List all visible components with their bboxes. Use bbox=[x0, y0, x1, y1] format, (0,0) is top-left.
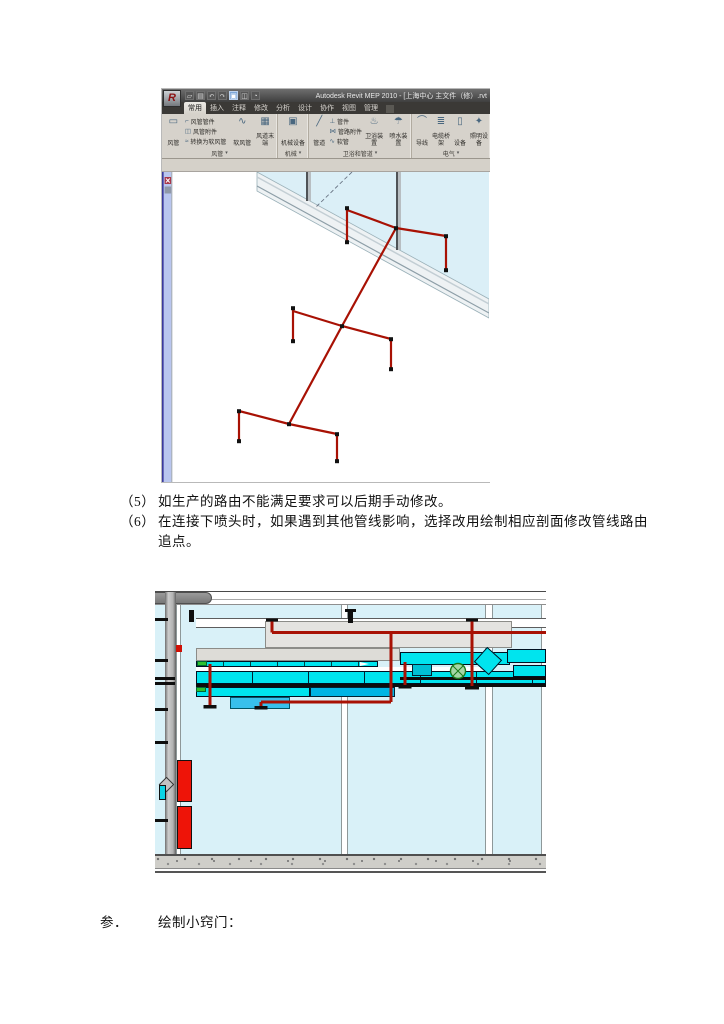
duct-accessory-icon: ◫ bbox=[185, 128, 191, 135]
ribbon-tab-bar: 常用 插入 注释 修改 分析 设计 协作 视图 管理 bbox=[162, 102, 490, 114]
flex-duct-icon: ∿ bbox=[238, 116, 246, 128]
heading-text: 绘制小窍门： bbox=[158, 915, 242, 930]
render-icon[interactable]: ◔ bbox=[251, 91, 260, 100]
list-text: 如生产的路由不能满足要求可以后期手动修改。 bbox=[158, 494, 452, 509]
button-label: 风管管件 bbox=[191, 117, 215, 126]
mullion bbox=[306, 172, 311, 201]
panel-label-electrical[interactable]: 电气▾ bbox=[412, 148, 490, 158]
pipe-fitting-button[interactable]: ⊥管件 bbox=[329, 117, 361, 126]
button-label: 风管附件 bbox=[193, 127, 217, 136]
panel-label-duct[interactable]: 风管▾ bbox=[162, 148, 277, 158]
button-label: 软管 bbox=[337, 137, 349, 146]
ribbon-panel-mechanical: ▣ 机械设备 机械▾ bbox=[278, 114, 309, 158]
revit-logo-icon[interactable]: R bbox=[163, 90, 181, 107]
panel-label-mechanical[interactable]: 机械▾ bbox=[278, 148, 308, 158]
button-label: 导线 bbox=[416, 141, 428, 148]
help-icon[interactable] bbox=[386, 105, 394, 113]
pipe-icon: ╱ bbox=[316, 116, 322, 128]
duct-icon: ▭ bbox=[169, 116, 178, 128]
redo-icon[interactable]: ↷ bbox=[218, 91, 227, 100]
tab-home[interactable]: 常用 bbox=[184, 102, 206, 114]
drawing-area-3d-view[interactable] bbox=[162, 172, 490, 483]
3d-view-graphics bbox=[162, 172, 489, 483]
list-item-5: （5）如生产的路由不能满足要求可以后期手动修改。 bbox=[120, 492, 452, 512]
button-label: 软风管 bbox=[233, 141, 251, 148]
button-label: 管道 bbox=[313, 141, 325, 148]
list-item-6-continued: 追点。 bbox=[158, 532, 200, 552]
mullion bbox=[396, 172, 401, 250]
duct-accessory-button[interactable]: ◫风管附件 bbox=[185, 127, 231, 136]
tab-view[interactable]: 视图 bbox=[338, 102, 360, 114]
sprinkler-icon: ☂ bbox=[394, 116, 403, 128]
list-text: 在连接下喷头时，如果遇到其他管线影响，选择改用绘制相应剖面修改管线路由 bbox=[158, 514, 648, 529]
button-label: 照明设备 bbox=[470, 134, 488, 147]
pipe-fitting-icon: ⊥ bbox=[329, 118, 335, 125]
button-label: 卫浴装置 bbox=[362, 134, 385, 147]
ribbon-panel-duct: ▭ 风管 ⌐风管管件 ◫风管附件 ≈转换为软风管 ∿ 软风管 ▦ 风道末端 bbox=[162, 114, 278, 158]
tab-analyze[interactable]: 分析 bbox=[272, 102, 294, 114]
flex-pipe-icon: ∿ bbox=[329, 138, 334, 145]
tab-annotate[interactable]: 注释 bbox=[228, 102, 250, 114]
list-number: （6） bbox=[120, 512, 158, 532]
button-label: 管路附件 bbox=[338, 127, 362, 136]
tab-modify[interactable]: 修改 bbox=[250, 102, 272, 114]
air-terminal-icon: ▦ bbox=[260, 116, 269, 128]
plumbing-fixture-button[interactable]: ♨ 卫浴装置 bbox=[362, 115, 385, 148]
button-label: 机械设备 bbox=[281, 141, 305, 148]
list-item-6: （6）在连接下喷头时，如果遇到其他管线影响，选择改用绘制相应剖面修改管线路由 bbox=[120, 512, 648, 532]
sprinkler-main-pipes bbox=[210, 621, 546, 707]
tab-insert[interactable]: 插入 bbox=[206, 102, 228, 114]
chevron-down-icon: ▾ bbox=[375, 150, 378, 156]
convert-flex-duct-icon: ≈ bbox=[185, 138, 189, 145]
heading-number: 参． bbox=[100, 913, 158, 933]
plumbing-fixture-icon: ♨ bbox=[370, 116, 379, 128]
convert-flex-duct-button[interactable]: ≈转换为软风管 bbox=[185, 137, 231, 146]
chevron-down-icon: ▾ bbox=[225, 150, 228, 156]
device-button[interactable]: ▯ 设备 bbox=[451, 115, 469, 148]
tab-manage[interactable]: 管理 bbox=[360, 102, 382, 114]
window-title: Autodesk Revit MEP 2010 - [上海中心 主文件（修）.r… bbox=[260, 91, 490, 101]
wire-button[interactable]: ⌒ 导线 bbox=[413, 115, 431, 148]
vav-damper-circle bbox=[451, 664, 466, 679]
section-heading: 参．绘制小窍门： bbox=[100, 913, 242, 933]
open-icon[interactable]: ▱ bbox=[185, 91, 194, 100]
list-text: 追点。 bbox=[158, 534, 200, 549]
pipe-flanges bbox=[189, 609, 479, 710]
button-label: 喷水装置 bbox=[387, 134, 410, 147]
quick-access-toolbar: ▱ ▤ ↶ ↷ ▣ ◫ ◔ bbox=[185, 91, 260, 100]
undo-icon[interactable]: ↶ bbox=[207, 91, 216, 100]
ribbon-panel-plumbing: ╱ 管道 ⊥管件 ⋈管路附件 ∿软管 ♨ 卫浴装置 ☂ 喷水装置 bbox=[309, 114, 412, 158]
air-terminal-button[interactable]: ▦ 风道末端 bbox=[254, 115, 276, 148]
3d-view-icon[interactable]: ◫ bbox=[240, 91, 249, 100]
button-label: 转换为软风管 bbox=[190, 137, 226, 146]
lighting-fixture-button[interactable]: ✦ 照明设备 bbox=[470, 115, 488, 148]
document-page: R ▱ ▤ ↶ ↷ ▣ ◫ ◔ Autodesk Revit MEP 2010 … bbox=[0, 0, 724, 1024]
panel-strip-border bbox=[171, 172, 172, 483]
tab-collaborate[interactable]: 协作 bbox=[316, 102, 338, 114]
device-icon: ▯ bbox=[457, 116, 463, 128]
options-bar bbox=[162, 159, 490, 172]
window-edge bbox=[162, 172, 164, 483]
flex-pipe-button[interactable]: ∿软管 bbox=[329, 137, 361, 146]
restore-icon[interactable] bbox=[165, 187, 172, 194]
flex-duct-button[interactable]: ∿ 软风管 bbox=[231, 115, 253, 148]
sprinkler-button[interactable]: ☂ 喷水装置 bbox=[387, 115, 410, 148]
chevron-down-icon: ▾ bbox=[457, 150, 460, 156]
ribbon-panel-electrical: ⌒ 导线 ≣ 电缆桥架 ▯ 设备 ✦ 照明设备 bbox=[412, 114, 490, 158]
button-label: 管件 bbox=[337, 117, 349, 126]
button-label: 风管 bbox=[167, 141, 179, 148]
mechanical-equipment-button[interactable]: ▣ 机械设备 bbox=[279, 115, 307, 148]
save-icon[interactable]: ▤ bbox=[196, 91, 205, 100]
revit-screenshot-section bbox=[155, 591, 546, 874]
pipe-accessory-icon: ⋈ bbox=[329, 128, 336, 135]
chevron-down-icon: ▾ bbox=[299, 150, 302, 156]
mechanical-equipment-icon: ▣ bbox=[288, 116, 297, 128]
cable-tray-icon: ≣ bbox=[437, 116, 445, 128]
duct-button[interactable]: ▭ 风管 bbox=[163, 115, 184, 148]
button-label: 设备 bbox=[454, 141, 466, 148]
duct-fitting-icon: ⌐ bbox=[185, 118, 189, 125]
revit-screenshot-3d: R ▱ ▤ ↶ ↷ ▣ ◫ ◔ Autodesk Revit MEP 2010 … bbox=[161, 88, 490, 483]
lighting-fixture-icon: ✦ bbox=[475, 116, 483, 128]
section-pipes bbox=[155, 591, 546, 874]
wire-icon: ⌒ bbox=[417, 116, 427, 128]
button-label: 风道末端 bbox=[254, 134, 276, 147]
button-label: 电缆桥架 bbox=[432, 134, 450, 147]
selection-icon[interactable]: ▣ bbox=[229, 91, 238, 100]
revit-titlebar: R ▱ ▤ ↶ ↷ ▣ ◫ ◔ Autodesk Revit MEP 2010 … bbox=[162, 89, 490, 102]
list-number: （5） bbox=[120, 492, 158, 512]
cable-tray-button[interactable]: ≣ 电缆桥架 bbox=[432, 115, 450, 148]
collapsed-panel-strip[interactable] bbox=[164, 172, 172, 483]
pipe-button[interactable]: ╱ 管道 bbox=[310, 115, 328, 148]
red-fitting bbox=[176, 645, 182, 652]
panel-label-plumbing[interactable]: 卫浴和管道▾ bbox=[309, 148, 411, 158]
duct-fitting-button[interactable]: ⌐风管管件 bbox=[185, 117, 231, 126]
ribbon: ▭ 风管 ⌐风管管件 ◫风管附件 ≈转换为软风管 ∿ 软风管 ▦ 风道末端 bbox=[162, 114, 490, 159]
tab-design[interactable]: 设计 bbox=[294, 102, 316, 114]
pipe-accessory-button[interactable]: ⋈管路附件 bbox=[329, 127, 361, 136]
